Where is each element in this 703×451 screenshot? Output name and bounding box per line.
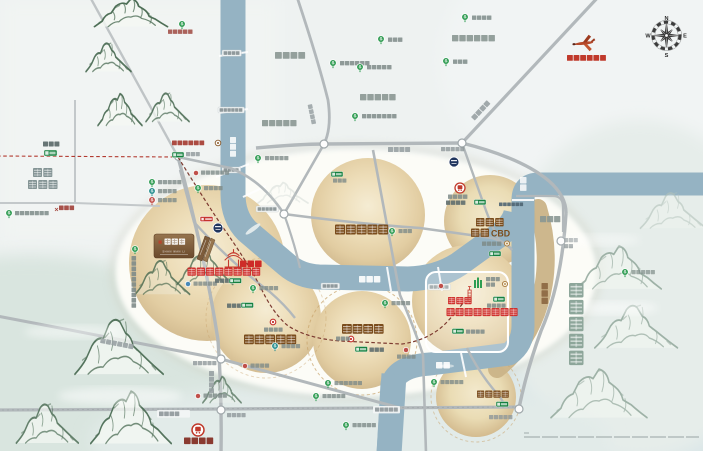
svg-text:S: S [665,53,669,59]
svg-text:N: N [664,16,668,22]
svg-text:SHAN WAN LI: SHAN WAN LI [162,250,185,254]
svg-text:E: E [683,34,687,40]
svg-text:CBD: CBD [491,229,510,239]
svg-text:W: W [645,34,651,40]
